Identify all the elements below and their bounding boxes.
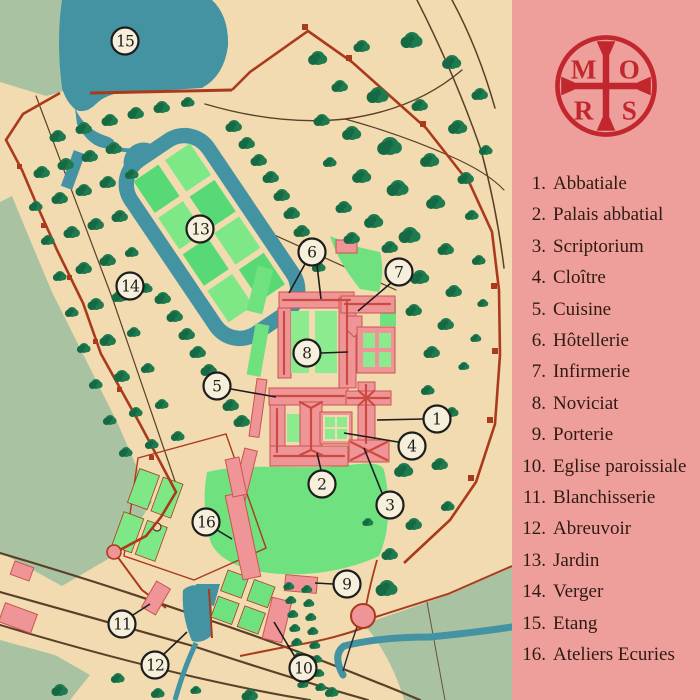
gate-tower-west [107, 545, 121, 559]
abbey-map-svg: 12345678910111213141516 [0, 0, 512, 700]
logo-letter-s: S [622, 96, 637, 126]
legend-number: 15. [520, 608, 546, 639]
marker-number: 9 [342, 575, 352, 593]
legend-label: Porterie [553, 419, 613, 450]
legend-label: Infirmerie [553, 356, 630, 387]
legend-number: 3. [520, 231, 546, 262]
legend-item: 3.Scriptorium [520, 231, 698, 262]
legend-item: 4.Cloître [520, 262, 698, 293]
legend-item: 13.Jardin [520, 545, 698, 576]
legend-label: Abbatiale [553, 168, 627, 199]
legend-item: 2.Palais abbatial [520, 199, 698, 230]
legend-number: 12. [520, 513, 546, 544]
mors-logo: M O R S [550, 30, 662, 142]
legend-number: 10. [520, 451, 546, 482]
marker-number: 15 [116, 32, 134, 50]
legend-label: Hôtellerie [553, 325, 629, 356]
legend-number: 14. [520, 576, 546, 607]
legend-label: Palais abbatial [553, 199, 663, 230]
legend-label: Verger [553, 576, 603, 607]
legend-number: 8. [520, 388, 546, 419]
marker-leader-line [315, 583, 333, 584]
marker-number: 4 [407, 437, 417, 455]
legend-label: Noviciat [553, 388, 618, 419]
screenshot-root: 12345678910111213141516 M O R S 1.Abbati… [0, 0, 700, 700]
legend-number: 1. [520, 168, 546, 199]
abbey-map: 12345678910111213141516 [0, 0, 512, 700]
logo-letter-m: M [571, 55, 597, 85]
marker-number: 1 [432, 410, 442, 428]
legend-label: Cloître [553, 262, 606, 293]
legend-label: Etang [553, 608, 597, 639]
logo-letter-o: O [619, 55, 640, 85]
map-marker-13: 13 [187, 216, 214, 243]
legend-list: 1.Abbatiale 2.Palais abbatial 3.Scriptor… [512, 168, 700, 671]
marker-number: 2 [317, 475, 327, 493]
map-marker-15: 15 [112, 28, 139, 55]
logo-letter-r: R [574, 96, 594, 126]
marker-number: 5 [212, 377, 222, 395]
marker-number: 14 [121, 277, 140, 295]
legend-number: 9. [520, 419, 546, 450]
legend-number: 5. [520, 294, 546, 325]
legend-item: 10.Eglise paroissiale [520, 451, 698, 482]
legend-item: 7.Infirmerie [520, 356, 698, 387]
legend-item: 12.Abreuvoir [520, 513, 698, 544]
legend-item: 1.Abbatiale [520, 168, 698, 199]
legend-number: 2. [520, 199, 546, 230]
legend-number: 13. [520, 545, 546, 576]
legend-number: 16. [520, 639, 546, 670]
palais-courtyard [287, 414, 300, 442]
legend-number: 7. [520, 356, 546, 387]
legend-number: 4. [520, 262, 546, 293]
map-marker-14: 14 [117, 273, 144, 300]
legend-item: 5.Cuisine [520, 294, 698, 325]
marker-number: 12 [146, 656, 164, 674]
legend-item: 15.Etang [520, 608, 698, 639]
legend-number: 6. [520, 325, 546, 356]
legend-item: 16.Ateliers Ecuries [520, 639, 698, 670]
marker-number: 6 [307, 243, 317, 261]
legend-label: Scriptorium [553, 231, 644, 262]
legend-item: 6.Hôtellerie [520, 325, 698, 356]
legend-label: Ateliers Ecuries [553, 639, 675, 670]
marker-number: 16 [197, 513, 215, 531]
marker-number: 13 [191, 220, 209, 238]
legend-label: Eglise paroissiale [553, 451, 687, 482]
marker-number: 8 [302, 344, 312, 362]
legend-item: 11.Blanchisserie [520, 482, 698, 513]
marker-number: 7 [394, 263, 404, 281]
marker-number: 3 [385, 496, 395, 514]
marker-leader-line [377, 419, 423, 420]
legend-item: 9.Porterie [520, 419, 698, 450]
legend-label: Jardin [553, 545, 599, 576]
legend-panel: M O R S 1.Abbatiale 2.Palais abbatial 3.… [512, 0, 700, 700]
legend-label: Cuisine [553, 294, 611, 325]
legend-label: Blanchisserie [553, 482, 655, 513]
legend-label: Abreuvoir [553, 513, 631, 544]
gate-tower-south [351, 604, 375, 628]
legend-item: 8.Noviciat [520, 388, 698, 419]
marker-number: 10 [294, 659, 312, 677]
hotellerie-courtyard-2 [315, 311, 337, 373]
legend-number: 11. [520, 482, 546, 513]
marker-leader-line [321, 352, 348, 353]
marker-number: 11 [113, 615, 131, 633]
legend-item: 14.Verger [520, 576, 698, 607]
